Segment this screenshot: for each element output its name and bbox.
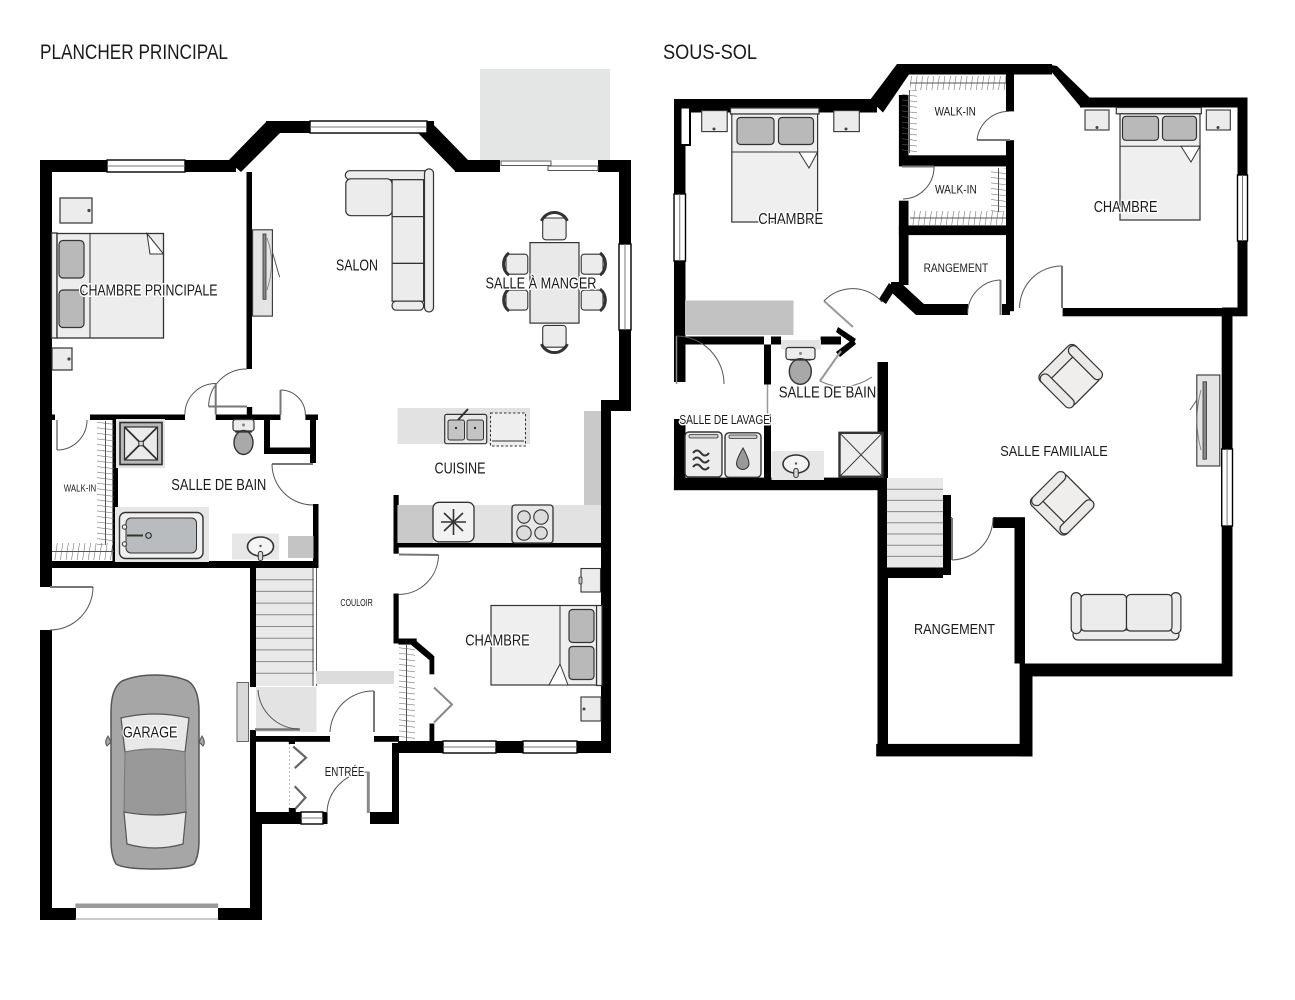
svg-text:ENTRÉE: ENTRÉE [325,764,365,779]
svg-text:CHAMBRE: CHAMBRE [465,633,530,650]
svg-text:WALK-IN: WALK-IN [935,106,976,118]
svg-text:COULOIR: COULOIR [340,597,373,609]
svg-text:WALK-IN: WALK-IN [935,185,977,197]
svg-text:CHAMBRE: CHAMBRE [758,211,823,228]
svg-text:GARAGE: GARAGE [123,725,178,742]
svg-text:SALLE FAMILIALE: SALLE FAMILIALE [1000,443,1108,460]
svg-text:CHAMBRE PRINCIPALE: CHAMBRE PRINCIPALE [80,283,218,300]
svg-text:SALLE DE LAVAGE: SALLE DE LAVAGE [679,413,770,427]
svg-text:CUISINE: CUISINE [435,460,486,477]
svg-text:SALLE DE BAIN: SALLE DE BAIN [171,477,266,494]
svg-text:SALLE À MANGER: SALLE À MANGER [486,274,597,293]
svg-text:SALON: SALON [336,257,378,274]
svg-text:SALLE DE BAIN: SALLE DE BAIN [779,385,877,402]
svg-text:PLANCHER PRINCIPAL: PLANCHER PRINCIPAL [40,41,228,64]
svg-text:WALK-IN: WALK-IN [64,482,97,494]
svg-text:RANGEMENT: RANGEMENT [914,621,995,638]
svg-text:CHAMBRE: CHAMBRE [1094,199,1158,216]
svg-text:SOUS-SOL: SOUS-SOL [663,41,757,64]
svg-text:RANGEMENT: RANGEMENT [924,261,989,275]
